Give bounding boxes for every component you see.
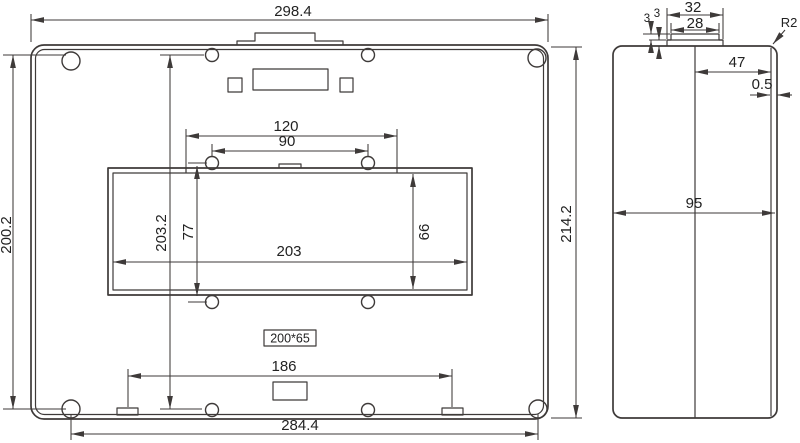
dim-body-depth-value: 95 bbox=[686, 195, 703, 212]
dim-cutout-height: 66 bbox=[413, 174, 433, 289]
dim-tab-inner-width-value: 28 bbox=[687, 15, 704, 32]
dim-cutout-height-value: 66 bbox=[416, 224, 433, 241]
dimension-drawing-svg: 298.4 200.2 214.2 284.4 120 bbox=[0, 0, 800, 443]
dim-tab-to-front-value: 47 bbox=[729, 54, 746, 71]
dim-boss-hole-span-vertical-inner: 77 bbox=[180, 163, 207, 302]
technical-drawing-canvas: 298.4 200.2 214.2 284.4 120 bbox=[0, 0, 800, 443]
side-view-dimensions: 32 28 3 3 R2 47 bbox=[613, 0, 797, 213]
square-cutout-right bbox=[340, 78, 353, 92]
dim-tab-outer-width-value: 32 bbox=[685, 0, 702, 16]
dim-corner-hole-span-horizontal-value: 284.4 bbox=[281, 417, 319, 434]
dim-corner-hole-span-horizontal: 284.4 bbox=[71, 414, 538, 440]
dim-tab-inner-width: 28 bbox=[671, 15, 719, 33]
dim-tab-step-upper-value: 3 bbox=[644, 13, 650, 25]
dim-boss-hole-span-vertical-inner-value: 77 bbox=[180, 224, 197, 241]
dim-overall-width: 298.4 bbox=[31, 3, 548, 42]
dim-front-lip: 0.5 bbox=[750, 76, 792, 95]
panel-size-label-value: 200*65 bbox=[270, 332, 310, 346]
dim-body-depth: 95 bbox=[613, 195, 775, 213]
dim-tab-to-front: 47 bbox=[695, 54, 771, 72]
dim-overall-height-value: 214.2 bbox=[558, 205, 575, 243]
dim-corner-hole-span-vertical-value: 200.2 bbox=[0, 216, 15, 254]
boss-hole bbox=[206, 296, 219, 309]
bottom-rect-cutout bbox=[273, 382, 307, 400]
dim-tab-step-heights: 3 3 bbox=[643, 8, 670, 58]
dim-corner-radius-value: R2 bbox=[781, 15, 798, 30]
dim-overall-width-value: 298.4 bbox=[274, 3, 312, 20]
dim-overall-height: 214.2 bbox=[551, 47, 582, 418]
dim-boss-hole-span-vertical-outer-value: 203.2 bbox=[153, 214, 170, 252]
boss-hole bbox=[362, 296, 375, 309]
corner-holes bbox=[62, 49, 547, 418]
boss-hole bbox=[206, 49, 219, 62]
dim-corner-radius: R2 bbox=[773, 15, 797, 44]
dim-boss-hole-span-horizontal: 90 bbox=[212, 133, 368, 157]
panel-size-label: 200*65 bbox=[264, 330, 316, 346]
dim-tab-step-lower-value: 3 bbox=[654, 8, 660, 20]
square-cutout-left bbox=[228, 78, 242, 92]
dim-boss-hole-span-horizontal-value: 90 bbox=[279, 133, 296, 150]
dim-cutout-width-value: 203 bbox=[276, 243, 301, 260]
dim-corner-hole-span-vertical: 200.2 bbox=[0, 55, 66, 409]
connector-cutout bbox=[253, 69, 328, 90]
dim-front-lip-value: 0.5 bbox=[752, 76, 773, 93]
dim-bottom-tab-span-value: 186 bbox=[271, 358, 296, 375]
boss-hole bbox=[362, 49, 375, 62]
front-top-tab bbox=[237, 33, 343, 45]
